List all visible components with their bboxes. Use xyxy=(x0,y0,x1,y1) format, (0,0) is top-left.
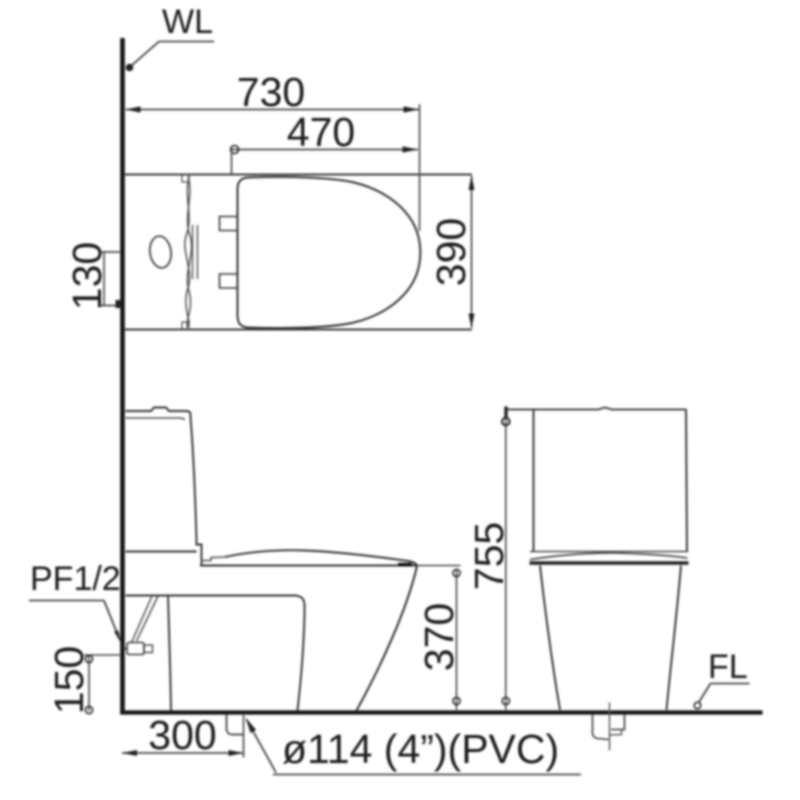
svg-text:300: 300 xyxy=(148,712,216,758)
svg-text:370: 370 xyxy=(416,603,462,671)
svg-text:130: 130 xyxy=(64,242,110,310)
svg-text:470: 470 xyxy=(287,109,355,155)
svg-text:390: 390 xyxy=(428,218,474,286)
svg-text:FL: FL xyxy=(708,648,748,686)
svg-text:755: 755 xyxy=(466,522,512,590)
svg-text:150: 150 xyxy=(46,646,92,714)
svg-text:ø114 (4”)(PVC): ø114 (4”)(PVC) xyxy=(282,726,559,772)
svg-text:WL: WL xyxy=(162,3,213,41)
svg-text:PF1/2: PF1/2 xyxy=(30,560,121,598)
